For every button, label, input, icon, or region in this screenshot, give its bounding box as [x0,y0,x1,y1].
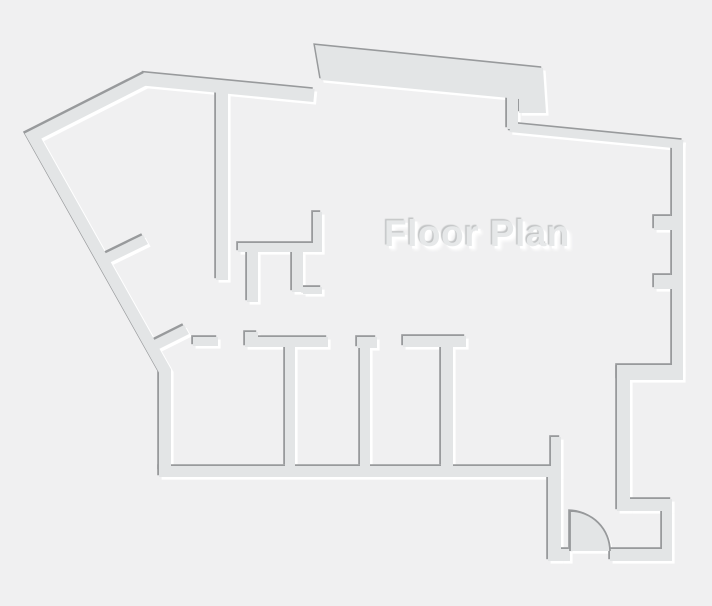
floor-plan-title: Floor Plan [384,215,570,252]
floor-plan-canvas: Floor Plan [0,0,712,606]
wall-fill-layer [33,45,683,561]
floor-plan-drawing [0,0,712,606]
